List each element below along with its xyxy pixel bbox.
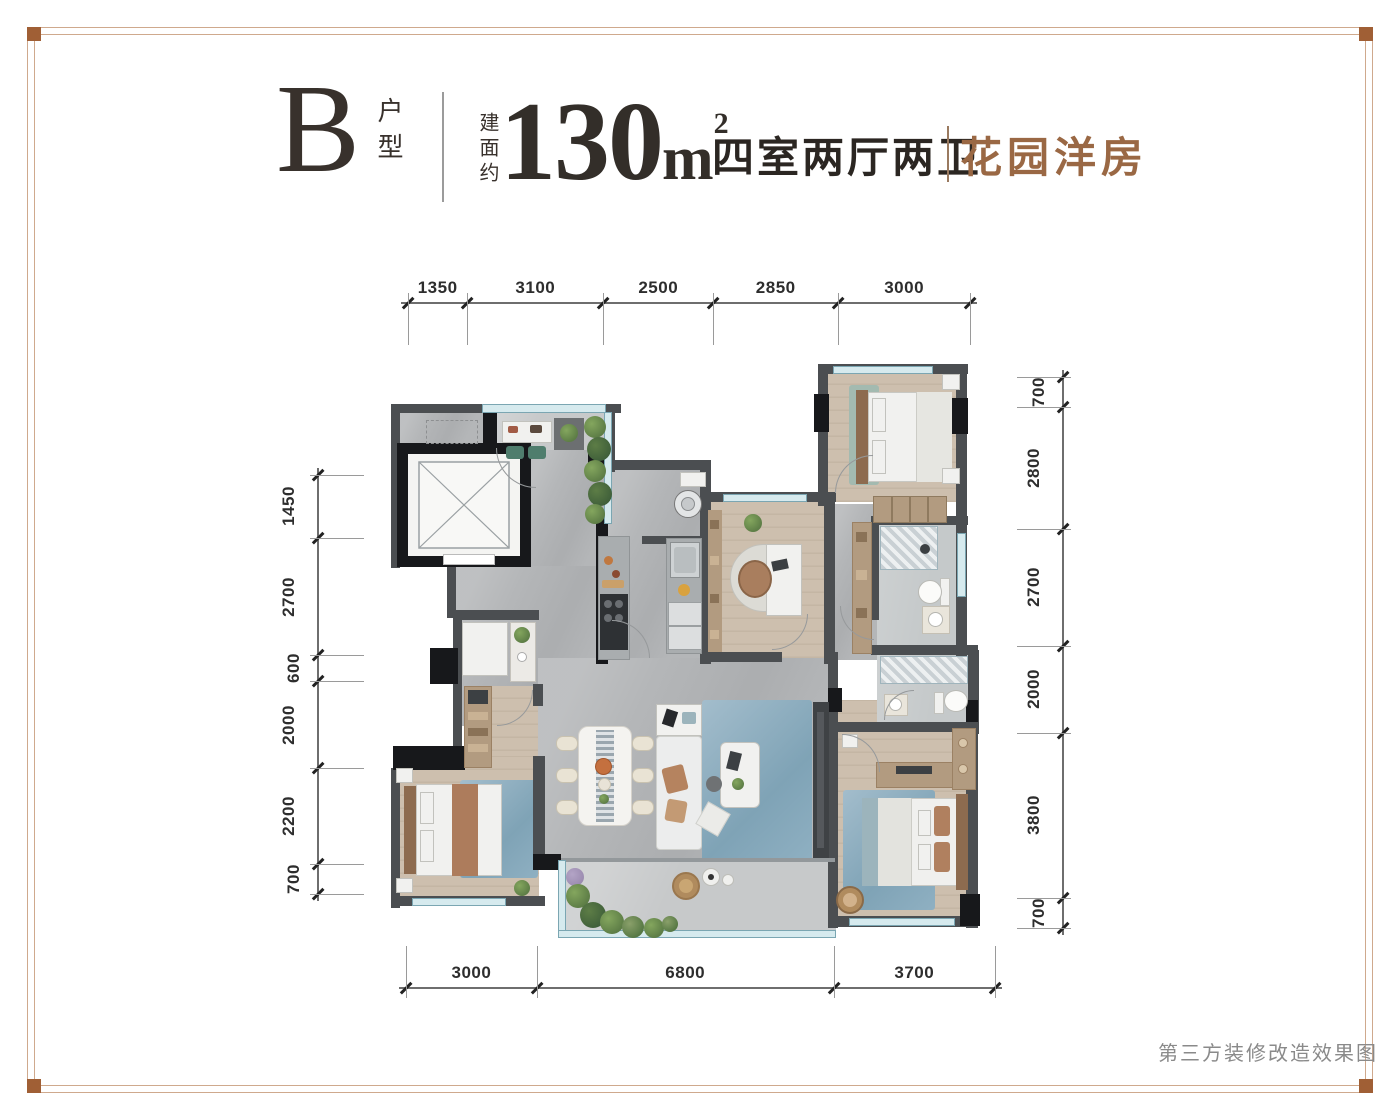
nightstand [942, 468, 960, 484]
master-blanket [878, 798, 912, 886]
sink-basin [674, 547, 696, 573]
dining-bowl [595, 758, 612, 775]
bed1-headboard [404, 786, 416, 874]
window [849, 918, 955, 926]
dim-line [401, 302, 977, 304]
basin [928, 612, 943, 627]
dim-extension [970, 293, 971, 345]
shelf-item [710, 630, 719, 639]
dim-extension [310, 475, 364, 476]
dim-extension [1017, 646, 1071, 647]
wardrobe-divider [909, 497, 911, 522]
area-number: 130 [500, 80, 662, 204]
dim-label: 2800 [1024, 448, 1044, 488]
side-stool [706, 776, 722, 792]
table-dish [530, 425, 542, 433]
wall [533, 756, 545, 860]
window [723, 494, 807, 502]
unit-letter: B [276, 64, 360, 196]
dim-label: 6800 [665, 963, 705, 983]
table-dish [508, 426, 518, 433]
bedroom1-plant [514, 880, 530, 896]
dim-label: 2850 [756, 278, 796, 298]
dim-label: 3700 [894, 963, 934, 983]
dim-extension [310, 864, 364, 865]
burner [615, 600, 623, 608]
dim-label: 700 [1029, 898, 1049, 928]
toilet-tank [934, 692, 944, 714]
dim-extension [537, 946, 538, 998]
bed2-pillow [872, 398, 886, 432]
elevator-car [418, 461, 510, 549]
table-runner [596, 730, 614, 822]
bed1-blanket [452, 784, 478, 876]
wall [704, 652, 782, 662]
window [412, 898, 506, 906]
wall [453, 610, 539, 620]
frame-corner-br [1359, 1079, 1373, 1093]
dim-label: 2700 [1024, 567, 1044, 607]
shelf-item [710, 520, 719, 529]
dining-plate [598, 778, 611, 791]
column [393, 746, 465, 770]
master-pillow-white [918, 844, 931, 870]
dim-label: 3000 [884, 278, 924, 298]
hanger [958, 764, 968, 774]
tag-text: 花园洋房 [960, 124, 1148, 185]
cabinet-plant [514, 627, 530, 643]
dim-label: 2500 [638, 278, 678, 298]
dim-line [317, 468, 319, 901]
unit-type-label: 户型 [370, 97, 407, 169]
console-decor [682, 712, 696, 724]
disclaimer-caption: 第三方装修改造效果图 [1158, 1037, 1378, 1066]
laundry-sink [680, 472, 706, 487]
dim-label: 3100 [515, 278, 555, 298]
header-divider [442, 92, 444, 202]
dining-chair [632, 800, 654, 815]
balcony-glass [558, 930, 836, 938]
column [533, 854, 561, 870]
dining-chair [632, 736, 654, 751]
balcony-glass [558, 860, 566, 938]
washing-machine-drum [681, 497, 695, 511]
balcony-plant [600, 910, 624, 934]
pouf-top [679, 879, 693, 893]
frame-corner-tr [1359, 27, 1373, 41]
bed2-pillow [872, 440, 886, 474]
planting [584, 416, 606, 438]
column [960, 894, 980, 926]
planting [584, 460, 606, 482]
column [828, 688, 842, 712]
wardrobe-shelf [468, 744, 488, 752]
wall [871, 645, 978, 655]
dim-extension [713, 293, 714, 345]
sofa-pillow [664, 798, 688, 823]
dim-label: 700 [284, 864, 304, 894]
master-pillow [934, 842, 950, 872]
table-plant [599, 794, 609, 804]
dim-label: 1350 [418, 278, 458, 298]
column [950, 398, 968, 434]
dim-extension [310, 894, 364, 895]
wardrobe-divider [891, 497, 893, 522]
frame-corner-tl [27, 27, 41, 41]
shelf-item [710, 594, 719, 603]
balcony-plant [622, 916, 644, 938]
toilet-bowl [944, 690, 968, 712]
dim-extension [310, 655, 364, 656]
dresser-tv [896, 766, 932, 774]
dim-label: 600 [284, 653, 304, 683]
dim-label: 2700 [279, 577, 299, 617]
bed1-pillow [420, 792, 434, 824]
dim-extension [1017, 733, 1071, 734]
dim-extension [467, 293, 468, 345]
toilet-bowl [918, 580, 942, 604]
column [966, 700, 978, 722]
area-value: 130m2 [500, 86, 729, 198]
dim-extension [310, 538, 364, 539]
dim-extension [408, 293, 409, 345]
cabinet-item [517, 652, 527, 662]
dim-label: 3000 [452, 963, 492, 983]
dim-extension [310, 768, 364, 769]
master-headboard [956, 794, 968, 890]
dim-extension [406, 946, 407, 998]
frame-corner-bl [27, 1079, 41, 1093]
dim-extension [834, 946, 835, 998]
potted-plant [560, 424, 578, 442]
wardrobe-shelf [468, 728, 488, 736]
burner [604, 600, 612, 608]
wall [824, 492, 835, 664]
tag-divider [947, 126, 949, 182]
dim-label: 1450 [279, 487, 299, 527]
nightstand [396, 878, 413, 893]
wardrobe-shelf [468, 712, 488, 720]
balcony-door-track [545, 858, 835, 862]
pet-bed-cushion [843, 893, 857, 907]
cabinet-item [856, 570, 867, 580]
planting [588, 482, 612, 506]
kitchen-item [604, 556, 613, 565]
dim-extension [995, 946, 996, 998]
table-plant [732, 778, 744, 790]
shelf-item [710, 556, 719, 565]
dining-chair [632, 768, 654, 783]
sofa [656, 736, 702, 850]
planting [585, 504, 605, 524]
shower-area [880, 656, 968, 684]
elevator-door-sill [443, 554, 495, 565]
nightstand [396, 768, 413, 783]
kitchen-item [612, 570, 620, 578]
entry-dashed-zone [426, 420, 478, 444]
fridge-door-line [668, 625, 702, 627]
area-prefix: 建面约 [473, 112, 502, 187]
cutting-board [602, 580, 624, 588]
table-decor [708, 874, 714, 880]
dim-extension [1017, 529, 1071, 530]
column [430, 648, 458, 684]
shower-drain [920, 544, 930, 554]
burner [604, 614, 612, 622]
dim-extension [838, 293, 839, 345]
planting [587, 437, 611, 461]
dim-extension [310, 681, 364, 682]
closet [462, 622, 508, 676]
cabinet-item [856, 532, 867, 542]
dim-label: 700 [1029, 377, 1049, 407]
kitchen-item [678, 584, 690, 596]
dim-line [399, 987, 1002, 989]
wardrobe-tv [468, 690, 488, 704]
dim-line [1062, 370, 1064, 935]
wardrobe-divider [927, 497, 929, 522]
dining-chair [556, 736, 578, 751]
area-unit: m [662, 125, 714, 193]
dim-extension [603, 293, 604, 345]
balcony-plant [644, 918, 664, 938]
coffee-table [720, 742, 760, 808]
dim-label: 3800 [1024, 795, 1044, 835]
dim-extension [1017, 928, 1071, 929]
dim-label: 2000 [279, 705, 299, 745]
master-pillow-white [918, 810, 931, 836]
dim-label: 2200 [279, 796, 299, 836]
rooms-text: 四室两厅两卫 [712, 124, 982, 185]
master-throw [862, 798, 878, 886]
window [833, 366, 933, 374]
study-plant [744, 514, 762, 532]
wall [871, 516, 879, 620]
wall [533, 684, 543, 706]
dim-extension [1017, 407, 1071, 408]
dining-chair [556, 768, 578, 783]
dining-chair [556, 800, 578, 815]
bed1-pillow [420, 830, 434, 862]
study-chair [738, 560, 772, 598]
floorplan-page: B 户型 建面约 130m2 四室两厅两卫 花园洋房 [0, 0, 1400, 1120]
column [814, 394, 829, 432]
dim-label: 2000 [1024, 669, 1044, 709]
hanger [958, 738, 968, 748]
master-pillow [934, 806, 950, 836]
balcony-stool [722, 874, 734, 886]
balcony-plant [662, 916, 678, 932]
window [957, 533, 966, 597]
nightstand [942, 374, 960, 390]
window [482, 404, 606, 413]
wall [610, 460, 702, 470]
tv-screen [817, 712, 824, 848]
wall [818, 364, 828, 506]
